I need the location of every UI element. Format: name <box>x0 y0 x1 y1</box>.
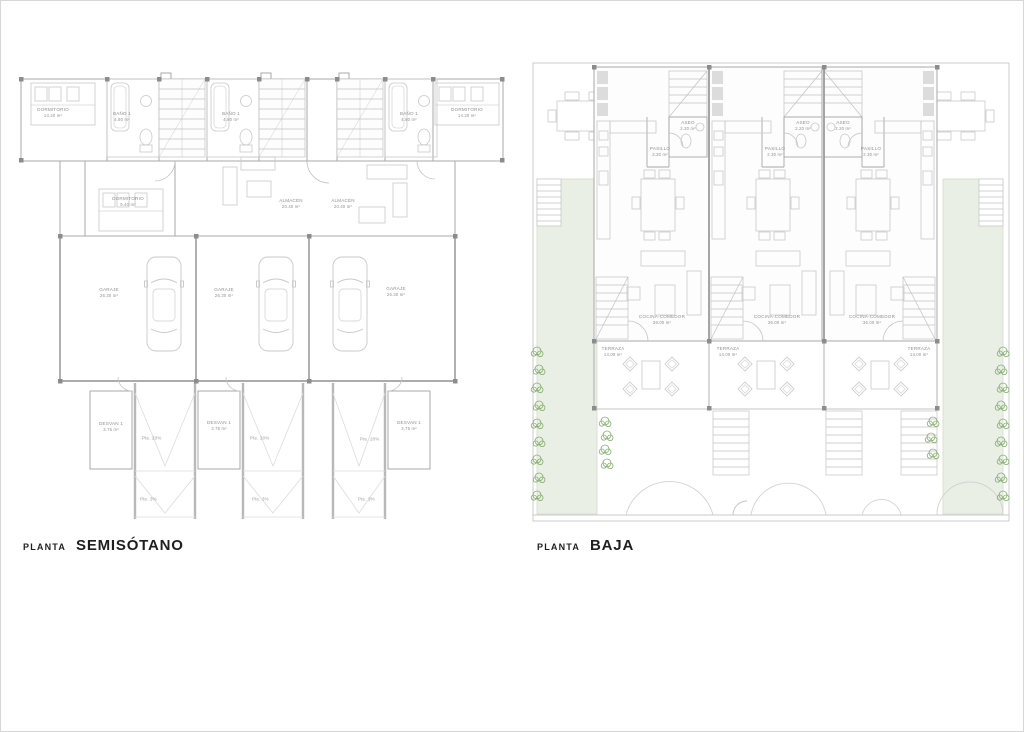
room-label-bano1-u1: BAÑO 14.80 m² <box>113 111 131 123</box>
plan-title-baja: PLANTABAJA <box>537 537 634 555</box>
room-label-dormitorio-der: DORMITORIO14.20 m² <box>451 107 483 119</box>
drawing-sheet: DORMITORIO14.20 m² BAÑO 14.80 m² BAÑO 14… <box>0 0 1024 732</box>
room-label-cocina-2: COCINA-COMEDOR36.00 m² <box>754 314 800 326</box>
room-label-terraza-2: TERRAZA14.00 m² <box>717 346 740 358</box>
floorplan-baja: ASEO2.20 m² ASEO2.20 m² ASEO2.20 m² PASI… <box>529 59 1013 527</box>
unit-3 <box>822 67 937 341</box>
room-label-pasillo-3: PASILLO2.30 m² <box>861 146 881 158</box>
plan-title-prefix: PLANTA <box>23 542 66 552</box>
room-label-desvan-1: DESVAN 13.75 m² <box>99 421 123 433</box>
ramp-slope-label: Pte. 20% <box>142 436 161 441</box>
stairs-icon <box>159 79 383 157</box>
room-label-almacen-2: ALMACÉN20.40 m² <box>331 198 355 210</box>
ramp-slope-label: Pte. 3% <box>252 497 269 502</box>
ramp-slope-label: Pte. 3% <box>140 497 157 502</box>
room-label-aseo-2: ASEO2.20 m² <box>795 120 811 132</box>
room-label-pasillo-1: PASILLO2.30 m² <box>650 146 670 158</box>
room-label-aseo-1: ASEO2.20 m² <box>680 120 696 132</box>
terraces <box>594 341 937 409</box>
room-label-desvan-2: DESVAN 13.75 m² <box>207 420 231 432</box>
sofa-icon <box>223 157 407 223</box>
exterior-stairs-icon <box>713 411 937 475</box>
car-icon <box>145 257 370 351</box>
floorplan-semisotano-drawing <box>15 61 509 531</box>
dwelling-units <box>594 67 937 341</box>
room-label-garaje-1: GARAJE26.30 m² <box>99 287 119 299</box>
unit-2 <box>709 67 824 341</box>
ramp-slope-label: Pte. 20% <box>250 436 269 441</box>
room-label-bano1-u3: BAÑO 14.80 m² <box>400 111 418 123</box>
plan-title-semisotano: PLANTASEMISÓTANO <box>23 537 184 555</box>
room-label-terraza-3: TERRAZA14.00 m² <box>908 346 931 358</box>
plan-title-name: SEMISÓTANO <box>76 537 184 554</box>
room-label-almacen-1: ALMACÉN20.40 m² <box>279 198 303 210</box>
floorplan-semisotano: DORMITORIO14.20 m² BAÑO 14.80 m² BAÑO 14… <box>15 61 509 531</box>
room-label-bano1-u2: BAÑO 14.80 m² <box>222 111 240 123</box>
plan-title-name: BAJA <box>590 537 634 554</box>
room-label-pasillo-2: PASILLO2.30 m² <box>765 146 785 158</box>
room-label-cocina-1: COCINA-COMEDOR36.00 m² <box>639 314 685 326</box>
room-label-dormitorio-izq: DORMITORIO14.20 m² <box>37 107 69 119</box>
room-label-garaje-2: GARAJE26.30 m² <box>214 287 234 299</box>
ramp-slope-label: Pte. 3% <box>358 497 375 502</box>
room-label-terraza-1: TERRAZA14.00 m² <box>602 346 625 358</box>
room-label-dormitorio-2: DORMITORIO9.40 m² <box>112 196 144 208</box>
room-label-garaje-3: GARAJE26.30 m² <box>386 286 406 298</box>
terrace-furniture-icon <box>623 357 908 396</box>
room-label-desvan-3: DESVAN 13.75 m² <box>397 420 421 432</box>
door-arcs <box>118 161 435 391</box>
unit-1 <box>594 67 709 341</box>
plan-title-prefix: PLANTA <box>537 542 580 552</box>
floorplan-baja-drawing <box>529 59 1013 527</box>
room-label-cocina-3: COCINA-COMEDOR36.00 m² <box>849 314 895 326</box>
ramp-slope-label: Pte. 20% <box>360 437 379 442</box>
room-label-aseo-3: ASEO2.20 m² <box>835 120 851 132</box>
